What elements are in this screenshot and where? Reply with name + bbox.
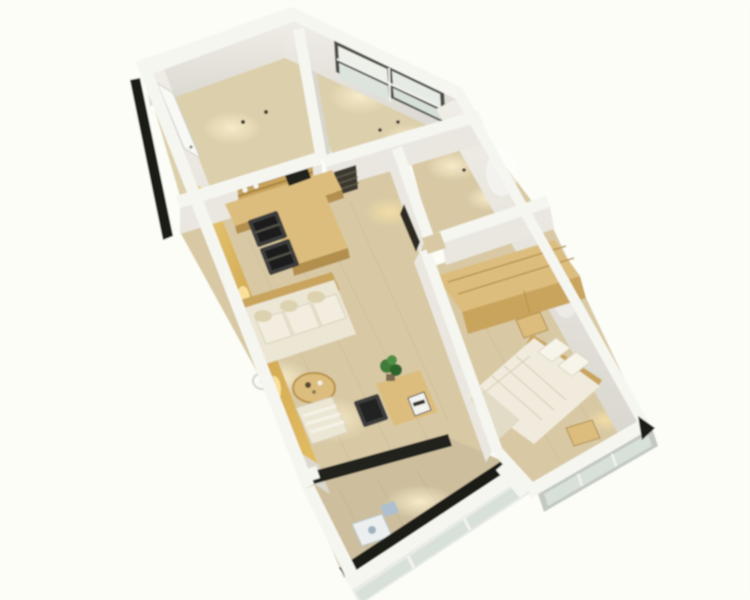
- light-pool-entry: [202, 111, 262, 145]
- apartment-3d-floorplan: [0, 0, 750, 600]
- washing-machine-door: [368, 526, 376, 534]
- floorplan-render-stage: [0, 0, 750, 600]
- door-handle: [189, 145, 192, 148]
